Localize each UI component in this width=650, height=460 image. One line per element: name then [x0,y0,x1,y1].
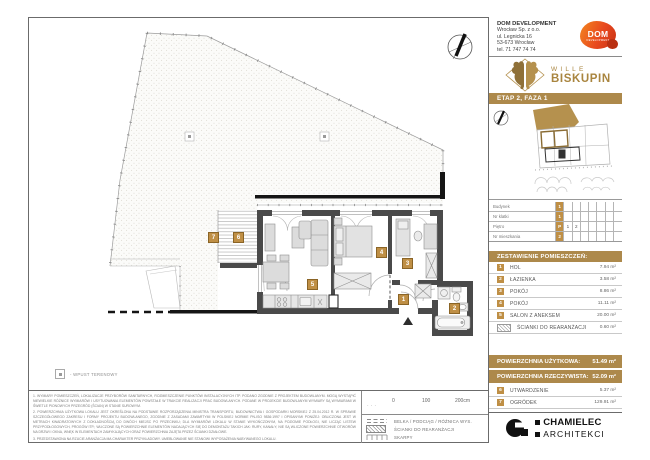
usable-area-value: 51.49 m² [592,359,616,365]
room-marker-lazienka: 2 [449,303,460,314]
dom-development-logo: DOM DEVELOPMENT [580,21,616,49]
room-schedule-title: ZESTAWIENIE POMIESZCZEŃ: [489,251,622,262]
room-marker-utwardzenie: 6 [233,232,244,243]
square-bullet-icon [535,420,540,425]
brand-name-top: WILLE [551,66,611,73]
room-row-pokoj-4: 4 POKÓJ 11.11 m² [489,298,622,310]
scale-label-0: 0 [392,398,395,404]
dom-logo-subtext: DEVELOPMENT [587,39,610,42]
mini-map-trees [535,177,614,192]
square-bullet-icon [535,432,540,437]
room-marker-hol: 1 [398,294,409,305]
entrance-arrow [403,317,413,325]
floor-plan: 1 2 3 4 5 6 7 - WPUST TERENOWY [28,17,488,390]
plan-legend: BELKA / PODCIĄG / RÓŻNICA WYS. ŚCIANKI D… [362,415,488,443]
usable-area-bar: POWIERZCHNIA UŻYTKOWA: 51.49 m² [489,355,622,368]
chamielec-icon [506,417,530,439]
disclaimer: 1. WYMIARY POMIESZCZEŃ, LOKALIZACJE PRZY… [28,391,362,443]
room-row-lazienka: 2 ŁAZIENKA 3.58 m² [489,274,622,286]
slope-symbol-icon [366,433,390,441]
unit-row-building: Budynek 1 [489,202,622,211]
unit-location-table: Budynek 1 Nr klatki 1 Piętro P 1 2 Nr mi… [489,200,622,242]
developer-info: DOM DEVELOPMENT Wrocław Sp. z o.o. ul. L… [489,17,622,57]
room-marker-salon: 5 [307,279,318,290]
scale-bar: ··· 0 100 200cm [362,391,488,415]
brand-block: WILLE BISKUPIN [489,57,622,93]
info-panel: DOM DEVELOPMENT Wrocław Sp. z o.o. ul. L… [488,17,622,443]
disclaimer-paragraph-1: 1. WYMIARY POMIESZCZEŃ, LOKALIZACJE PRZY… [33,394,356,409]
drain-legend-label: - WPUST TERENOWY [70,372,118,377]
site-mini-map [489,104,622,200]
bottom-band: 1. WYMIARY POMIESZCZEŃ, LOKALIZACJE PRZY… [28,390,488,443]
actual-area-value: 52.09 m² [592,374,616,380]
room-row-pokoj-3: 3 POKÓJ 8.86 m² [489,286,622,298]
floor-plan-drawing [28,17,488,390]
architect-name: CHAMIELEC [543,417,601,428]
apartment-number-value: 2 [555,232,563,241]
drain-symbol [185,132,194,141]
staircase-value: 1 [555,212,563,221]
legend-item-slopes: SKARPY [366,433,484,441]
disclaimer-paragraph-2: 2. POWIERZCHNIA UŻYTKOWA LOKALU JEST OKR… [33,410,356,435]
unit-row-floor: Piętro P 1 2 [489,221,622,231]
room-marker-ogrodek: 7 [208,232,219,243]
room-marker-pokoj-4: 4 [376,247,387,258]
dom-logo-text: DOM [588,29,609,39]
mini-compass-icon [494,111,508,125]
floor-value: P [555,222,563,231]
actual-area-label: POWIERZCHNIA RZECZYWISTA: [497,374,589,380]
drain-legend-icon [55,369,65,379]
beam-symbol-icon [366,417,390,425]
usable-area-label: POWIERZCHNIA UŻYTKOWA: [497,359,580,365]
architect-subtitle: ARCHITEKCI [543,429,604,439]
legend-item-reconfig-walls: ŚCIANKI DO REARANŻACJI [366,425,484,433]
brand-name-bottom: BISKUPIN [551,73,611,85]
hatch-icon [497,324,511,332]
room-schedule: ZESTAWIENIE POMIESZCZEŃ: 1 HOL 7.94 m² 2… [489,251,622,334]
disclaimer-paragraph-3: 3. PRZEDSTAWIONA NA RZUCIE ARANŻACJA MA … [33,437,356,442]
outdoor-row-ogrodek: 7 OGRÓDEK 129.91 m² [489,397,622,409]
oak-leaves-icon [505,58,545,92]
room-row-hol: 1 HOL 7.94 m² [489,262,622,274]
room-row-scianki: ŚCIANKI DO REARANŻACJI 0.60 m² [489,322,622,334]
drain-legend: - WPUST TERENOWY [55,369,118,379]
hatch-symbol-icon [366,425,390,433]
outdoor-row-utwardzenie: 6 UTWARDZENIE 5.37 m² [489,385,622,397]
scale-label-100: 100 [422,398,430,404]
legend-item-beam: BELKA / PODCIĄG / RÓŻNICA WYS. [366,417,484,425]
unit-row-apartment-number: Nr mieszkania 2 [489,231,622,241]
drain-symbol [320,132,329,141]
unit-row-staircase: Nr klatki 1 [489,211,622,221]
room-marker-pokoj-3: 3 [402,258,413,269]
scale-label-200: 200cm [455,398,470,404]
scale-ticks: ··· [367,403,378,409]
compass-icon [448,34,472,59]
building-value: 1 [555,202,563,211]
room-row-salon: 5 SALON Z ANEKSEM 20.00 m² [489,310,622,322]
stage-bar: ETAP 2, FAZA 1 [489,93,622,104]
architect-logo: CHAMIELEC ARCHITEKCI [489,412,622,443]
actual-area-bar: POWIERZCHNIA RZECZYWISTA: 52.09 m² [489,370,622,383]
